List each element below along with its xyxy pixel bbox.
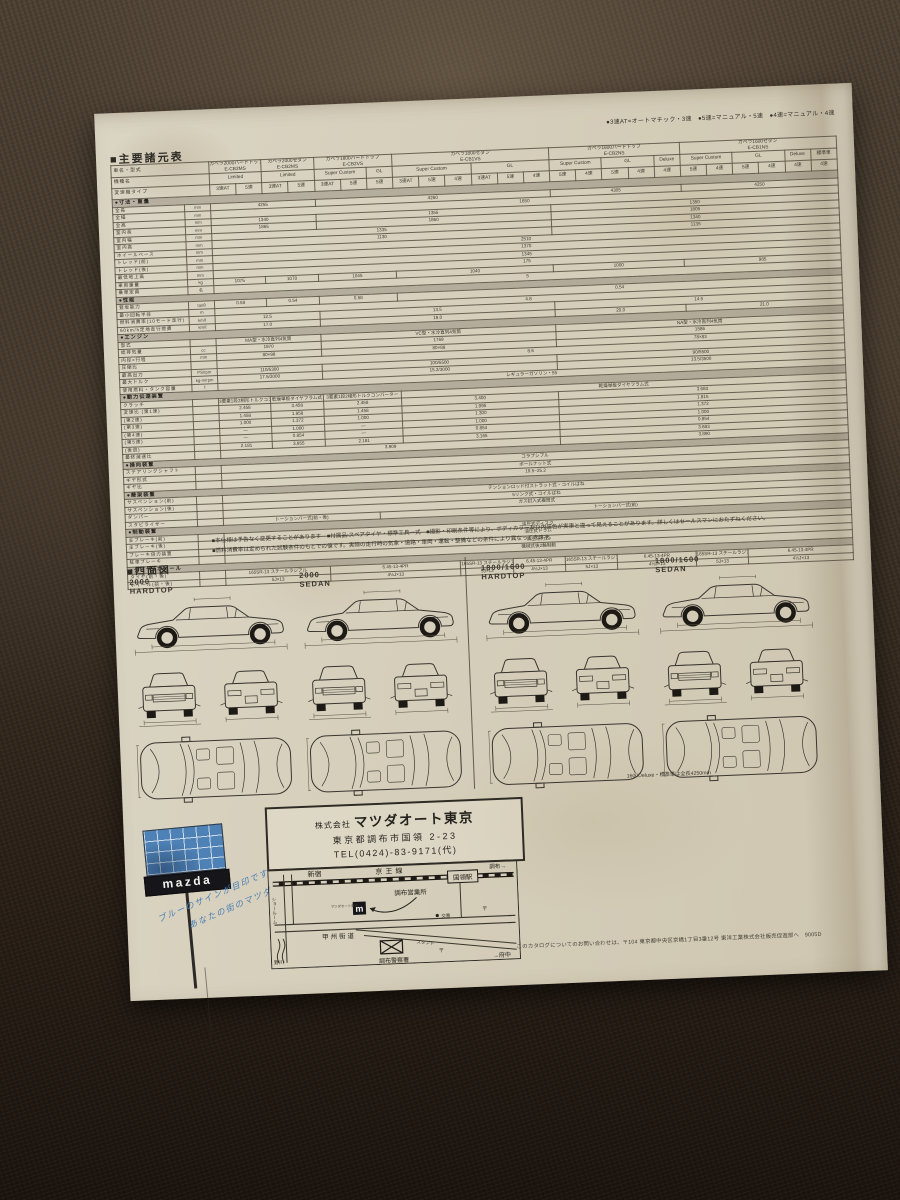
car-column: 1800/1600HARDTOP	[481, 557, 656, 796]
post-office-icon: 〒	[439, 947, 445, 954]
access-map: 新宿 京王線 国領駅 調布→ ショールーム 甲州街道 スタンド →府中 m マツ…	[267, 859, 521, 974]
car-rear-view	[217, 664, 286, 730]
car-rear-view	[742, 643, 811, 709]
car-front-rear-views	[305, 657, 471, 727]
police-x-icon	[380, 940, 403, 954]
car-front-view	[661, 646, 730, 712]
map-label-shinjuku: 新宿	[307, 869, 321, 879]
map-label-office: 調布営業所	[394, 887, 427, 897]
transmission-legend: ●3速AT=オートマチック・3速 ●5速=マニュアル・5速 ●4速=マニュアル・…	[606, 108, 835, 126]
brochure-page: ●3速AT=オートマチック・3速 ●5速=マニュアル・5速 ●4速=マニュアル・…	[94, 83, 888, 1001]
car-front-view	[487, 653, 556, 719]
car-front-rear-views	[661, 642, 827, 712]
map-label-stand: スタンド	[416, 938, 435, 946]
car-top-view	[487, 716, 656, 796]
map-label-koshu-kaido: 甲州街道	[322, 931, 356, 941]
map-label-showroom: ショールーム	[271, 897, 278, 925]
map-label-keio-line: 京王線	[375, 866, 405, 876]
koban-dot-icon	[436, 914, 439, 917]
map-label-fuchu-direction: →府中	[493, 951, 511, 960]
map-label-police: 調布警察署	[379, 956, 409, 965]
car-front-rear-views	[135, 664, 301, 734]
map-label-nogawa: 野川	[274, 959, 284, 966]
car-column: 2000HARDTOP	[129, 571, 304, 810]
car-views	[656, 571, 831, 789]
station-road	[460, 883, 461, 918]
car-column: 2000SEDAN	[299, 564, 474, 803]
car-rear-view	[569, 650, 638, 716]
car-side-view	[300, 586, 469, 658]
sign-pole-shadow	[204, 967, 212, 1037]
car-views	[130, 593, 305, 811]
mazda-sign-tiles-icon	[142, 823, 226, 876]
car-side-view	[482, 578, 651, 650]
car-front-view	[135, 668, 204, 734]
catalog-contact-note: このカタログについてのお問い合わせは、〒104 東京都中央区京橋1丁目3番12号…	[516, 928, 874, 951]
post-office-icon: 〒	[482, 905, 488, 912]
car-column: 1800/1600SEDAN	[655, 549, 830, 788]
car-side-view	[656, 571, 825, 643]
car-rear-view	[387, 657, 456, 723]
car-front-view	[305, 661, 374, 727]
map-label-chofu-direction: 調布→	[489, 862, 506, 871]
car-side-view	[130, 593, 299, 665]
car-front-rear-views	[487, 649, 653, 719]
car-views	[482, 578, 657, 796]
car-top-view	[136, 731, 305, 811]
office-arrow	[370, 897, 418, 912]
office-arrowhead-icon	[370, 907, 376, 912]
car-top-view	[306, 724, 475, 804]
car-views	[300, 586, 475, 804]
